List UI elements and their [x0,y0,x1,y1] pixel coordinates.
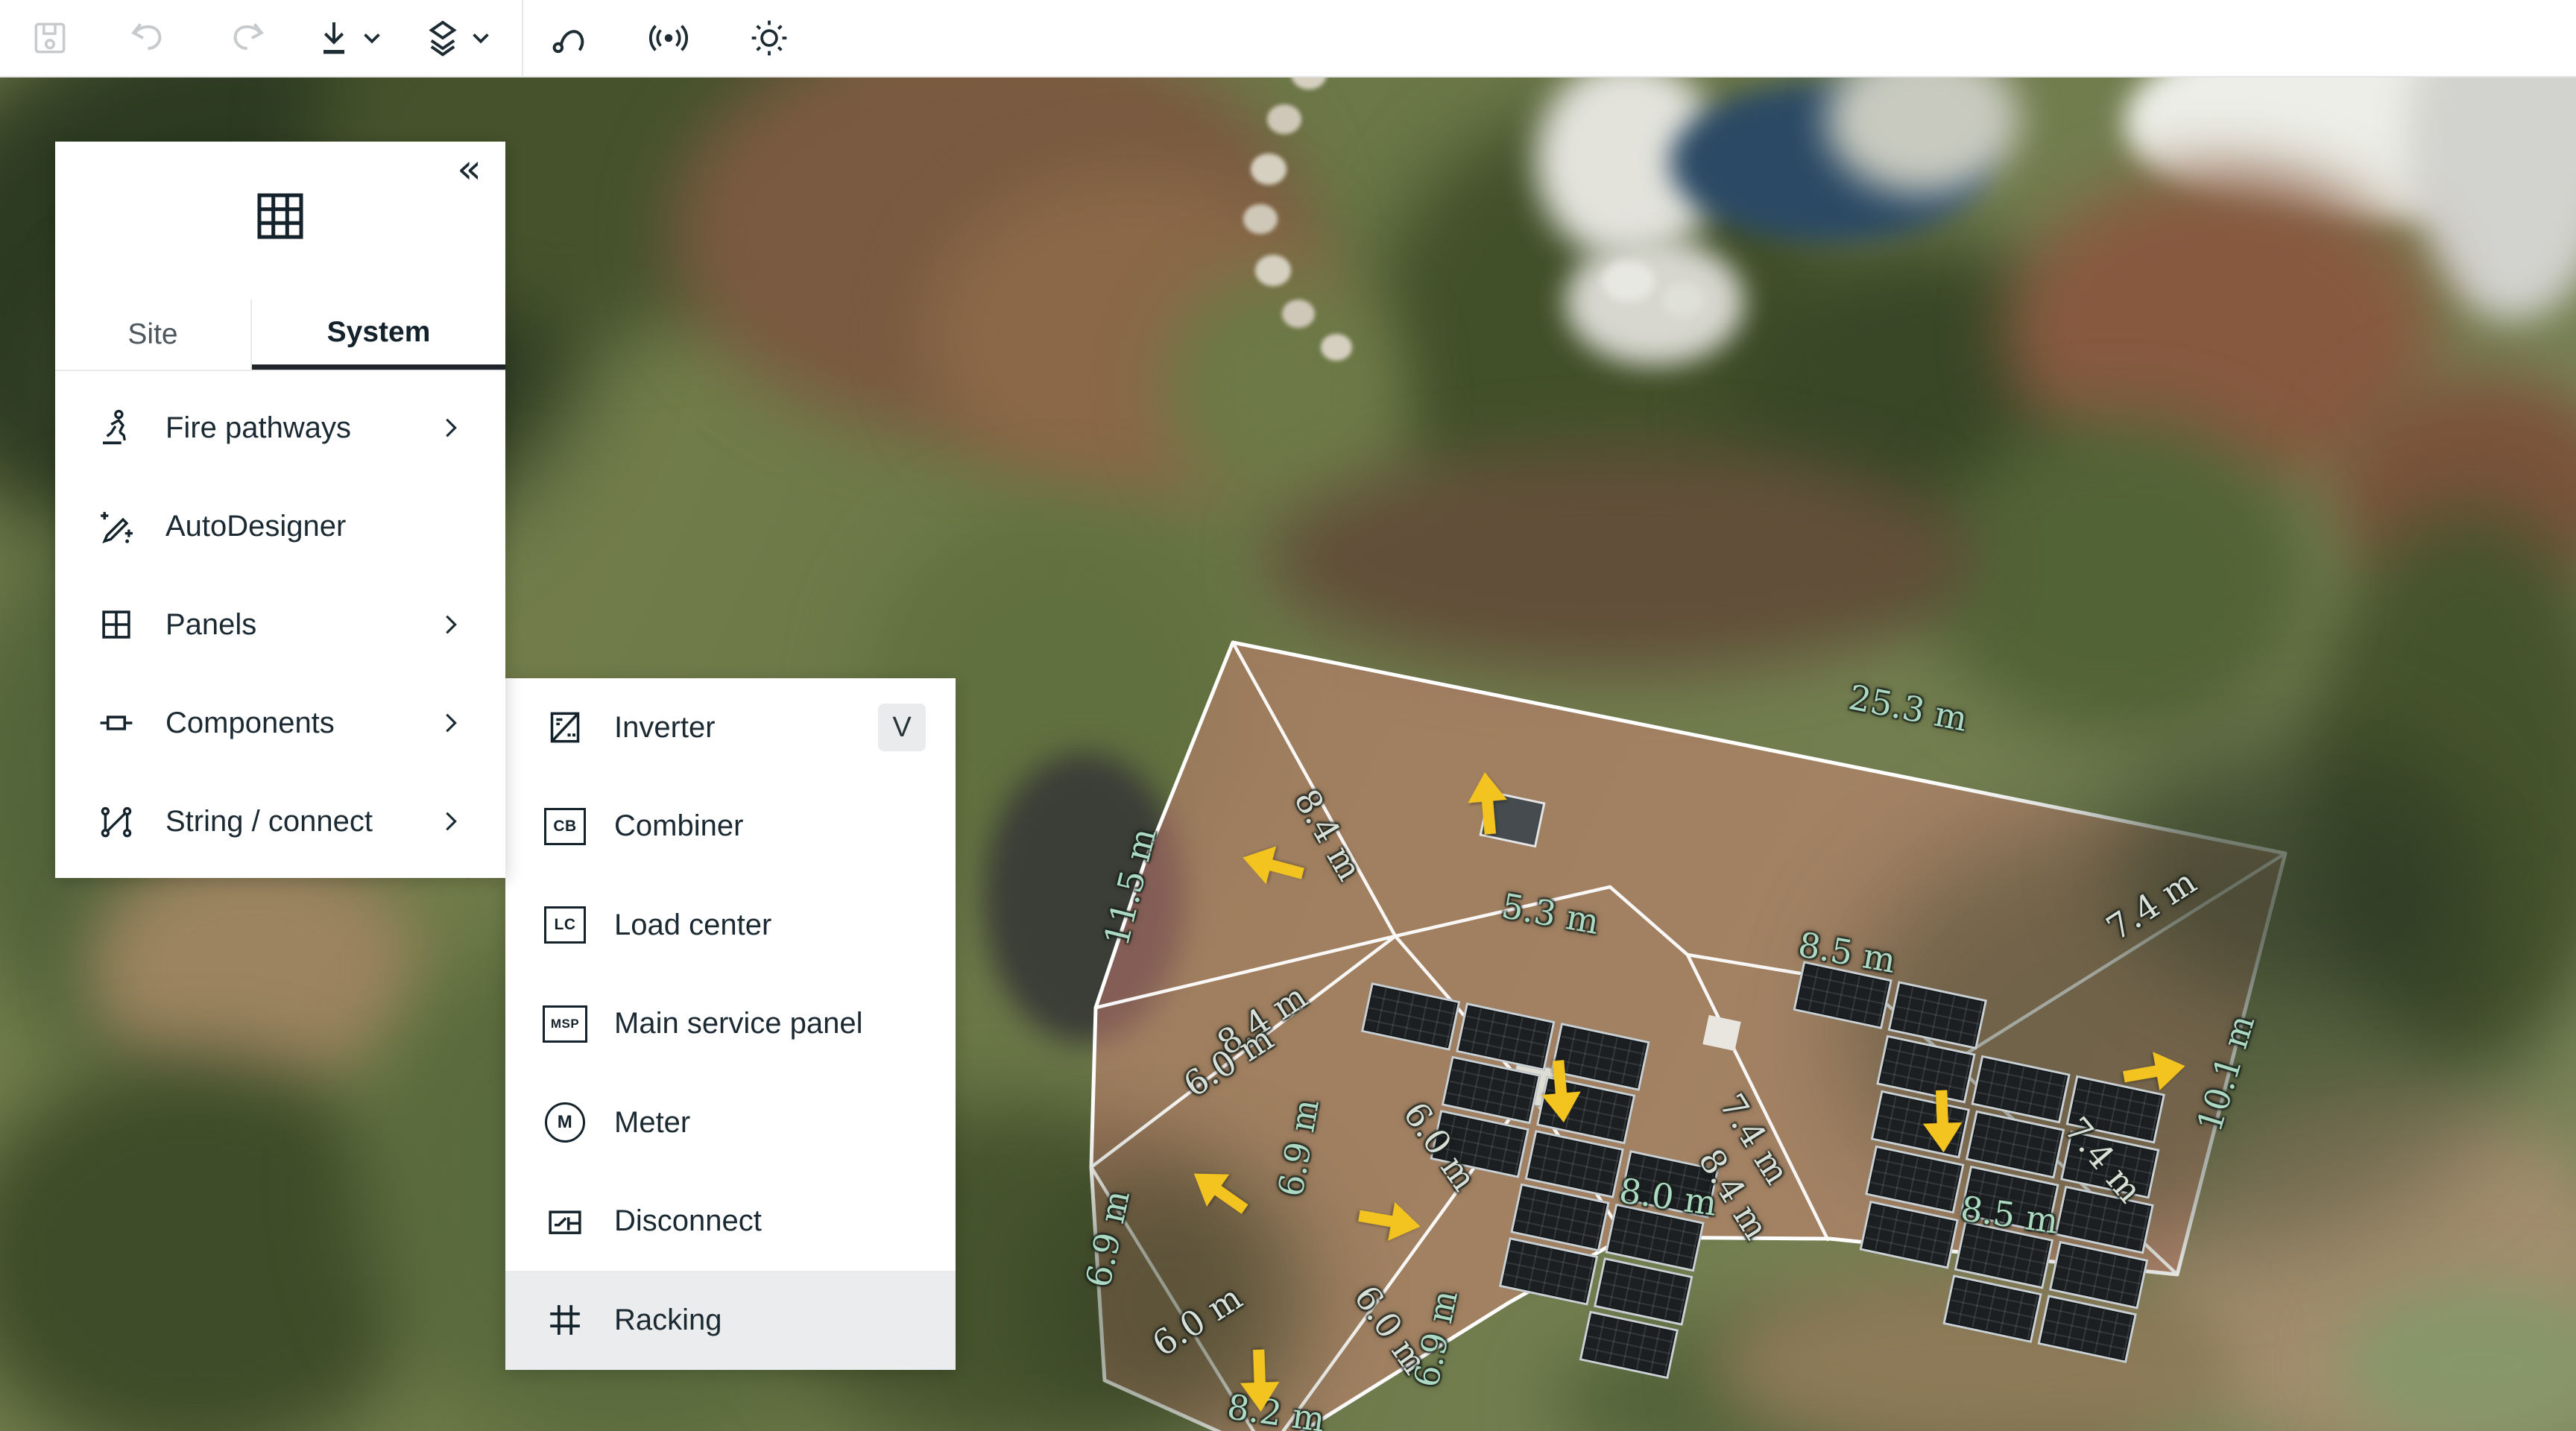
azimuth-arrow[interactable] [1533,1053,1588,1126]
azimuth-arrow[interactable] [2114,1041,2191,1102]
main-service-panel-icon: MSP [543,1005,587,1043]
submenu-item-label: Inverter [614,711,716,745]
redo-icon [226,17,268,59]
meter-icon: M [543,1102,587,1143]
fire-pathways-icon [95,408,137,448]
autodesigner-icon [95,506,137,546]
menu-item-string-connect[interactable]: String / connect [55,772,505,871]
submenu-item-label: Load center [614,909,771,942]
azimuth-arrow[interactable] [1460,768,1515,841]
keyboard-shortcut-badge: V [878,704,926,751]
tab-system[interactable]: System [252,300,505,370]
sidebar-tabs: Site System [55,300,505,371]
submenu-item-meter[interactable]: M Meter [505,1073,956,1172]
azimuth-arrow[interactable] [1916,1084,1968,1154]
layers-button[interactable] [422,17,490,59]
tab-site[interactable]: Site [55,300,252,370]
string-connect-icon [95,801,137,841]
design-sidebar: « Site System Fire pathways [55,142,505,878]
submenu-item-label: Racking [614,1304,722,1337]
download-button[interactable] [313,17,382,59]
menu-item-components[interactable]: Components [55,674,505,772]
msp-label: MSP [543,1005,587,1043]
toolbar-divider [522,0,523,78]
menu-item-label: String / connect [165,805,373,838]
submenu-item-label: Disconnect [614,1204,762,1238]
menu-item-label: Fire pathways [165,411,351,445]
menu-item-label: Components [165,707,335,740]
layers-icon [422,17,464,59]
submenu-item-load-center[interactable]: LC Load center [505,876,956,975]
chevron-right-icon [438,612,464,637]
arc-tool-icon [549,17,590,59]
azimuth-arrow[interactable] [1349,1190,1426,1251]
disconnect-icon [543,1201,587,1242]
arc-tool-button[interactable] [549,17,590,59]
signal-button[interactable] [648,17,689,59]
submenu-item-main-service-panel[interactable]: MSP Main service panel [505,975,956,1074]
azimuth-arrow[interactable] [1178,1152,1263,1232]
combiner-label: CB [544,808,586,845]
components-submenu: Inverter V CB Combiner LC Load center MS… [505,678,956,1370]
submenu-item-disconnect[interactable]: Disconnect [505,1172,956,1272]
save-button[interactable] [29,17,71,59]
top-toolbar [0,0,2576,78]
components-icon [95,703,137,743]
submenu-item-label: Combiner [614,809,743,843]
menu-item-panels[interactable]: Panels [55,575,505,674]
azimuth-arrow[interactable] [1235,833,1315,899]
save-icon [29,17,71,59]
panels-icon [95,604,137,645]
menu-item-fire-pathways[interactable]: Fire pathways [55,379,505,477]
grid-header-icon [255,191,306,245]
signal-icon [648,17,689,59]
menu-item-label: Panels [165,608,256,642]
undo-button[interactable] [127,17,169,59]
chevron-down-icon [471,30,490,46]
load-center-icon: LC [543,906,587,944]
system-menu: Fire pathways AutoDesigner [55,379,505,871]
submenu-item-combiner[interactable]: CB Combiner [505,777,956,876]
submenu-item-racking[interactable]: Racking [505,1271,956,1370]
combiner-icon: CB [543,808,587,845]
submenu-item-label: Main service panel [614,1007,863,1040]
collapse-panel-button[interactable]: « [452,145,486,193]
chevron-down-icon [362,30,382,46]
chevron-right-icon [438,415,464,440]
app-window: 25.3 m8.4 m11.5 m8.4 m6.0 m5.3 m6.0 m8.5… [0,0,2576,1431]
menu-item-label: AutoDesigner [165,510,346,543]
chevron-right-icon [438,710,464,736]
submenu-item-label: Meter [614,1106,690,1140]
meter-label: M [545,1102,585,1143]
redo-button[interactable] [226,17,268,59]
inverter-icon [543,707,587,748]
azimuth-arrow[interactable] [1234,1343,1285,1414]
sun-brightness-button[interactable] [748,17,790,59]
menu-item-autodesigner[interactable]: AutoDesigner [55,477,505,575]
chevron-right-icon [438,809,464,834]
download-icon [313,17,355,59]
undo-icon [127,17,169,59]
sun-brightness-icon [748,17,790,59]
racking-icon [543,1299,587,1341]
submenu-item-inverter[interactable]: Inverter V [505,678,956,777]
load-center-label: LC [544,906,586,944]
